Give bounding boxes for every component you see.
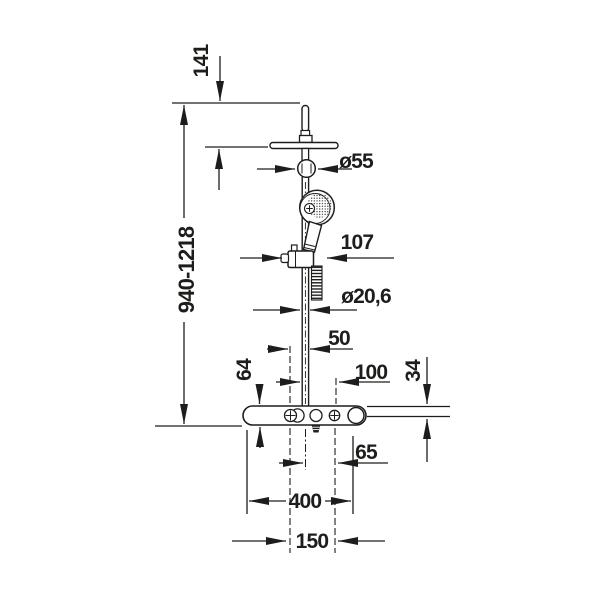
dim-label-141: 141 xyxy=(190,44,213,78)
dim-label-400: 400 xyxy=(289,490,322,513)
technical-drawing-canvas: 141 940-1218 ø55 107 ø20,6 50 64 100 34 … xyxy=(0,0,600,600)
pipe-upper-segment xyxy=(302,149,309,161)
center-extension-lines xyxy=(290,346,336,553)
shower-hose xyxy=(312,266,323,300)
dim-label-64: 64 xyxy=(233,358,256,381)
mixer-end-cap xyxy=(348,408,364,424)
dim-label-150: 150 xyxy=(296,530,329,553)
dim-label-height-range: 940-1218 xyxy=(174,226,199,313)
shower-top-assembly xyxy=(270,106,338,178)
dim-label-100: 100 xyxy=(355,361,388,384)
dim-label-o55: ø55 xyxy=(339,150,374,173)
drawing-page: 141 940-1218 ø55 107 ø20,6 50 64 100 34 … xyxy=(0,0,600,600)
dim-label-34: 34 xyxy=(402,359,425,382)
slider-bracket xyxy=(288,251,314,268)
outlet-port xyxy=(310,410,322,422)
dim-label-65: 65 xyxy=(355,441,378,464)
mixer-bar-assembly xyxy=(243,406,366,433)
hose-outlet-connector xyxy=(312,425,321,433)
slider-knob xyxy=(281,254,289,263)
overhead-shower-plate xyxy=(270,143,338,149)
ball-joint xyxy=(298,160,316,178)
collar-lower xyxy=(300,136,313,143)
dim-label-107: 107 xyxy=(341,231,374,254)
pipe-top-cap xyxy=(302,106,309,132)
dim-label-o206: ø20,6 xyxy=(341,285,391,308)
dim-label-50: 50 xyxy=(328,327,350,350)
